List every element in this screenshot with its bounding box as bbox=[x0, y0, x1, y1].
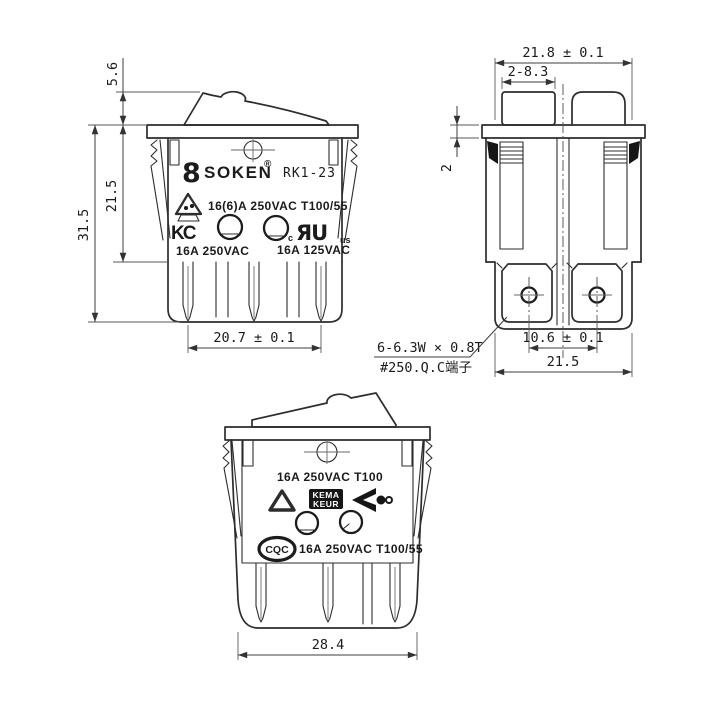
rocker-switch-technical-drawing: 8 SOKEN ® RK1-23 16(6)A 250VAC T100/55 K… bbox=[0, 0, 720, 720]
svg-text:20.7 ± 0.1: 20.7 ± 0.1 bbox=[213, 330, 294, 346]
circle-cert-icon-2 bbox=[340, 511, 362, 533]
clip-wedge-right bbox=[629, 141, 640, 164]
terminal-note: 6-6.3W × 0.8T #250.Q.C端子 bbox=[374, 317, 507, 376]
dim-body-height: 21.5 bbox=[104, 125, 168, 262]
circle-cert-icon-1 bbox=[296, 512, 318, 534]
rating-main: 16(6)A 250VAC T100/55 bbox=[208, 199, 348, 213]
mounting-flange bbox=[147, 125, 358, 138]
clip-slot-right bbox=[329, 140, 338, 165]
dim-overall-width: 28.4 bbox=[238, 632, 417, 660]
svg-text:2-8.3: 2-8.3 bbox=[508, 64, 549, 80]
svg-text:31.5: 31.5 bbox=[76, 209, 92, 242]
terminal-pin bbox=[183, 262, 193, 321]
cqc-mark-icon: CQC bbox=[259, 538, 295, 561]
arrow-cert-icon bbox=[352, 488, 392, 512]
ribbed-clip-right bbox=[604, 142, 627, 249]
circle-cert-icon-2 bbox=[264, 216, 288, 240]
terminal-tab-right bbox=[567, 263, 627, 322]
triangle-cert-icon bbox=[176, 194, 201, 221]
dim-flange-thickness: 2 bbox=[439, 106, 479, 172]
dim-total-height: 31.5 bbox=[76, 125, 180, 322]
side-view: 21.8 ± 0.1 2-8.3 2 10.6 ± 0.1 21.5 bbox=[374, 45, 645, 377]
kc-mark-icon: KC bbox=[171, 223, 197, 244]
clip-slot-left bbox=[170, 140, 179, 165]
svg-text:2: 2 bbox=[439, 164, 455, 172]
soken-logo-icon: 8 bbox=[182, 158, 201, 189]
terminal-tab-left bbox=[497, 263, 557, 322]
terminal-pin bbox=[316, 262, 326, 321]
terminal-pin bbox=[249, 262, 259, 321]
mounting-screw-icon bbox=[304, 440, 350, 464]
rocker-post-left bbox=[502, 92, 555, 125]
cul-us-mark-icon: ЯU bbox=[296, 221, 327, 245]
svg-text:#250.Q.C端子: #250.Q.C端子 bbox=[380, 360, 472, 376]
svg-text:21.8 ± 0.1: 21.8 ± 0.1 bbox=[522, 45, 603, 61]
svg-text:KEUR: KEUR bbox=[313, 499, 339, 509]
svg-text:6-6.3W × 0.8T: 6-6.3W × 0.8T bbox=[377, 340, 483, 356]
bottom-view: 16A 250VAC T100 KEMA KEUR CQC 16A 250VAC… bbox=[223, 393, 432, 660]
front-view: 8 SOKEN ® RK1-23 16(6)A 250VAC T100/55 K… bbox=[76, 58, 358, 353]
clip-slot-left bbox=[243, 440, 253, 466]
ribbed-clip-left bbox=[500, 142, 523, 249]
model-number: RK1-23 bbox=[283, 166, 336, 181]
brand-name: SOKEN bbox=[204, 163, 272, 182]
ul-c-label: c bbox=[288, 233, 293, 243]
dim-terminal-span: 20.7 ± 0.1 bbox=[188, 325, 321, 353]
rocker-profile bbox=[184, 92, 329, 125]
svg-text:CQC: CQC bbox=[265, 544, 289, 556]
triangle-cert-icon bbox=[270, 491, 294, 510]
rating-bottom: 16A 250VAC T100/55 bbox=[299, 542, 423, 556]
svg-text:21.5: 21.5 bbox=[104, 180, 120, 213]
terminal-block-slots bbox=[363, 563, 372, 624]
technical-drawing-canvas: 8 SOKEN ® RK1-23 16(6)A 250VAC T100/55 K… bbox=[0, 0, 720, 720]
dim-rocker-posts: 2-8.3 bbox=[502, 64, 555, 89]
clip-slot-right bbox=[402, 440, 412, 466]
kema-keur-mark-icon: KEMA KEUR bbox=[309, 489, 343, 509]
rocker-post-right bbox=[572, 92, 625, 125]
lower-housing bbox=[486, 262, 641, 329]
terminal-pin bbox=[390, 563, 400, 622]
svg-text:28.4: 28.4 bbox=[312, 637, 345, 653]
terminal-pin bbox=[256, 563, 266, 622]
svg-text:10.6 ± 0.1: 10.6 ± 0.1 bbox=[522, 330, 603, 346]
snap-clip-right-inner bbox=[338, 140, 348, 238]
svg-text:21.5: 21.5 bbox=[547, 354, 580, 370]
terminal-pin bbox=[323, 563, 333, 622]
mounting-flange-side bbox=[482, 125, 645, 138]
circle-cert-icon-1 bbox=[218, 215, 242, 239]
dim-rocker-height: 5.6 bbox=[105, 58, 200, 125]
registered-icon: ® bbox=[264, 159, 272, 170]
rating-right: 16A 125VAC bbox=[277, 243, 350, 257]
mounting-flange bbox=[225, 427, 430, 440]
rating-left: 16A 250VAC bbox=[176, 244, 249, 258]
rocker-profile bbox=[252, 393, 396, 427]
clip-wedge-left bbox=[487, 141, 498, 164]
svg-text:5.6: 5.6 bbox=[105, 62, 121, 86]
rating-top: 16A 250VAC T100 bbox=[277, 470, 383, 484]
